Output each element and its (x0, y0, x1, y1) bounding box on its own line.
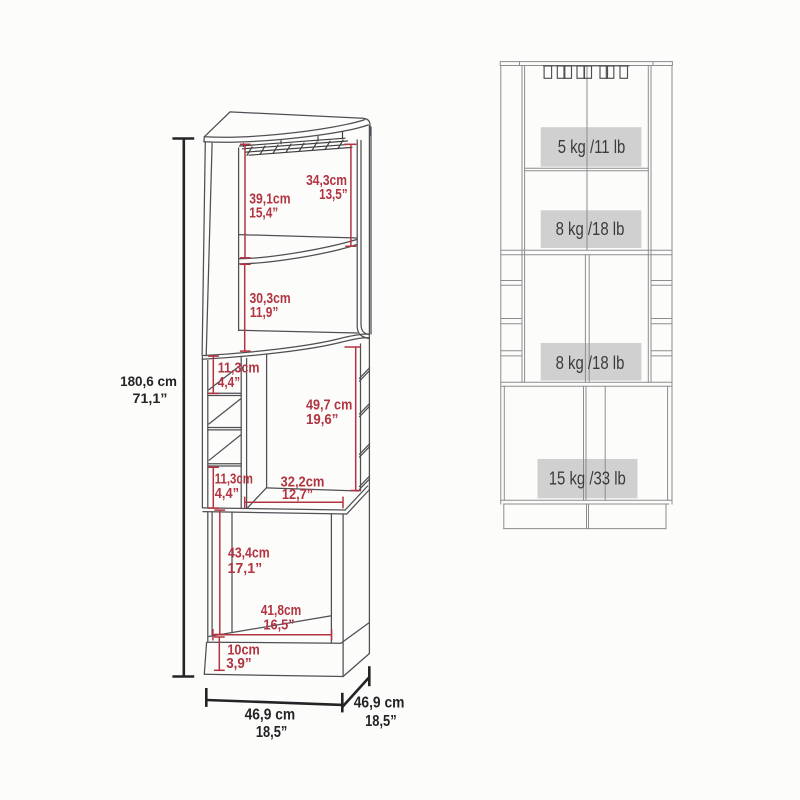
svg-text:43,4cm: 43,4cm (228, 545, 270, 561)
svg-text:16,5”: 16,5” (263, 617, 294, 633)
svg-text:8 kg /18 lb: 8 kg /18 lb (556, 353, 625, 373)
svg-text:11,3cm: 11,3cm (215, 471, 253, 487)
svg-text:15 kg /33 lb: 15 kg /33 lb (549, 468, 626, 488)
svg-text:17,1”: 17,1” (228, 561, 263, 577)
svg-text:3,9”: 3,9” (226, 656, 251, 672)
svg-text:180,6 cm: 180,6 cm (120, 374, 177, 390)
svg-text:5 kg /11 lb: 5 kg /11 lb (558, 137, 626, 157)
svg-text:71,1”: 71,1” (133, 391, 168, 407)
svg-text:19,6”: 19,6” (306, 412, 338, 428)
svg-text:13,5”: 13,5” (319, 187, 348, 203)
svg-text:15,4”: 15,4” (249, 205, 278, 221)
svg-text:11,9”: 11,9” (250, 305, 278, 321)
svg-text:4,4”: 4,4” (215, 486, 239, 502)
svg-text:46,9 cm: 46,9 cm (245, 707, 296, 724)
svg-text:18,5”: 18,5” (256, 724, 288, 741)
svg-text:4,4”: 4,4” (218, 375, 240, 391)
svg-text:46,9 cm: 46,9 cm (354, 694, 405, 711)
svg-text:8 kg /18 lb: 8 kg /18 lb (556, 219, 625, 239)
svg-text:12,7”: 12,7” (282, 487, 313, 503)
svg-text:18,5”: 18,5” (365, 713, 397, 730)
